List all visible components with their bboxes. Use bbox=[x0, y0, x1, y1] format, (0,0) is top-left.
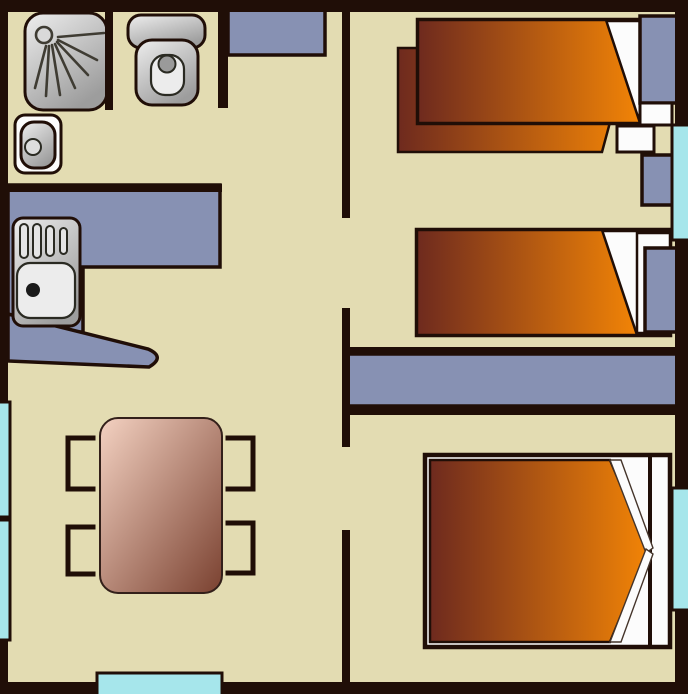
washbasin-drain-icon bbox=[25, 139, 41, 155]
single-bed-upper-mattress bbox=[418, 20, 640, 123]
window-left-upper bbox=[0, 402, 10, 517]
wall-central-upper bbox=[342, 10, 350, 218]
window-right-upper bbox=[672, 125, 688, 240]
floorplan-drawing bbox=[0, 0, 688, 694]
nightstand-top bbox=[640, 16, 677, 103]
pillow-lower-bed bbox=[617, 126, 654, 152]
wall-central-lower bbox=[342, 530, 350, 682]
shower-drain-icon bbox=[36, 27, 52, 43]
hall-wardrobe bbox=[228, 10, 325, 55]
shower-tray bbox=[25, 13, 107, 110]
toilet-flush-icon bbox=[159, 56, 176, 73]
entrance-door bbox=[97, 673, 222, 694]
double-bed-mattress bbox=[430, 460, 648, 642]
window-right-lower bbox=[672, 488, 688, 610]
bedroom-wardrobe-strip bbox=[348, 354, 677, 406]
wall-bathroom-partition bbox=[105, 10, 113, 110]
wall-divider-top bbox=[346, 347, 688, 354]
wall-bathroom-right bbox=[218, 10, 228, 108]
bedroom-middle-right bbox=[417, 230, 677, 335]
bedroom-bottom-right bbox=[425, 455, 670, 647]
kitchen-sink-bowl bbox=[17, 263, 75, 318]
wall-divider-bottom bbox=[346, 407, 688, 415]
dining-table bbox=[100, 418, 222, 593]
single-bed-mattress bbox=[417, 230, 637, 335]
wall-central-middle bbox=[342, 308, 350, 447]
sink-drain-icon bbox=[26, 283, 40, 297]
nightstand bbox=[645, 248, 677, 332]
window-left-lower bbox=[0, 520, 10, 640]
floorplan bbox=[0, 0, 688, 694]
wall-bathroom-bottom bbox=[8, 184, 222, 192]
bed-shelf bbox=[640, 103, 672, 125]
